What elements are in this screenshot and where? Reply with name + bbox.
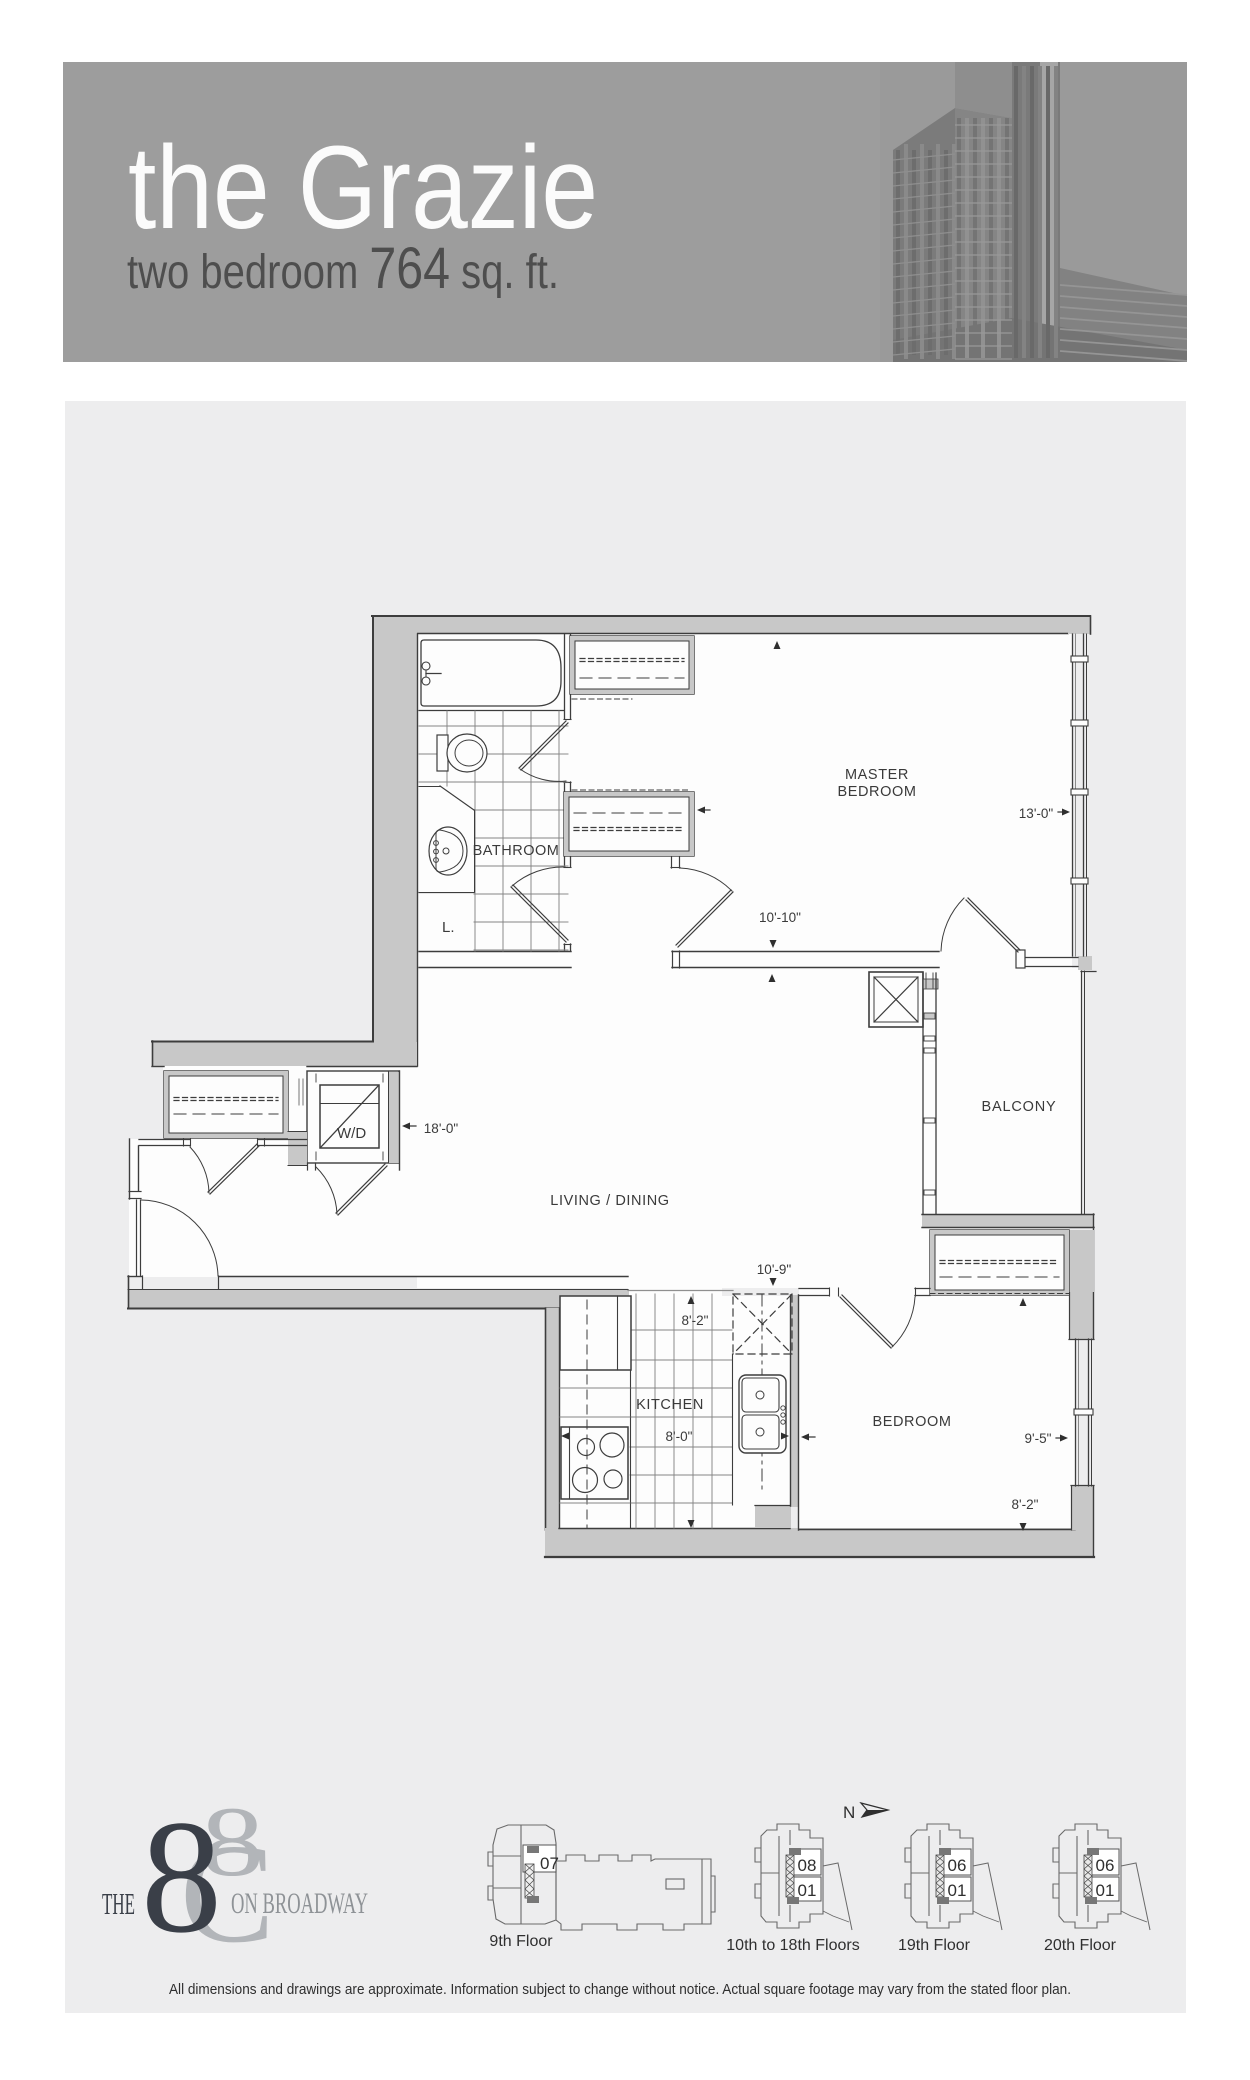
svg-text:07: 07 [540, 1854, 559, 1873]
svg-text:THE: THE [102, 1886, 135, 1921]
svg-text:8: 8 [141, 1788, 222, 1967]
svg-text:BALCONY: BALCONY [982, 1099, 1057, 1115]
svg-text:8'-2": 8'-2" [1012, 1497, 1039, 1512]
svg-text:BEDROOM: BEDROOM [872, 1414, 951, 1430]
svg-text:10'-9": 10'-9" [757, 1262, 792, 1277]
svg-text:10'-10": 10'-10" [759, 910, 801, 925]
svg-text:08: 08 [798, 1856, 817, 1875]
svg-text:BEDROOM: BEDROOM [837, 784, 916, 800]
svg-text:01: 01 [798, 1881, 817, 1900]
svg-text:All dimensions and drawings ar: All dimensions and drawings are approxim… [169, 1981, 1071, 1998]
svg-text:KITCHEN: KITCHEN [636, 1397, 704, 1413]
svg-text:LIVING / DINING: LIVING / DINING [550, 1193, 669, 1209]
svg-text:06: 06 [1096, 1856, 1115, 1875]
svg-text:9'-5": 9'-5" [1025, 1431, 1052, 1446]
svg-text:L.: L. [442, 919, 455, 936]
svg-text:19th Floor: 19th Floor [898, 1937, 971, 1954]
svg-text:MASTER: MASTER [845, 767, 909, 783]
svg-text:W/D: W/D [337, 1125, 366, 1142]
svg-text:01: 01 [1096, 1881, 1115, 1900]
svg-text:06: 06 [948, 1856, 967, 1875]
svg-text:20th Floor: 20th Floor [1044, 1937, 1117, 1954]
svg-text:10th to 18th Floors: 10th to 18th Floors [726, 1937, 859, 1954]
svg-text:ON BROADWAY: ON BROADWAY [231, 1887, 368, 1920]
svg-text:13'-0": 13'-0" [1019, 806, 1054, 821]
svg-text:8'-2": 8'-2" [682, 1313, 709, 1328]
svg-text:9th Floor: 9th Floor [489, 1933, 553, 1950]
svg-text:BATHROOM: BATHROOM [473, 843, 560, 859]
svg-text:8'-0": 8'-0" [666, 1429, 693, 1444]
svg-text:N: N [843, 1803, 855, 1822]
svg-text:two bedroom 764 sq. ft.: two bedroom 764 sq. ft. [127, 236, 559, 301]
svg-text:18'-0": 18'-0" [424, 1121, 459, 1136]
svg-text:01: 01 [948, 1881, 967, 1900]
svg-text:the Grazie: the Grazie [128, 122, 598, 254]
